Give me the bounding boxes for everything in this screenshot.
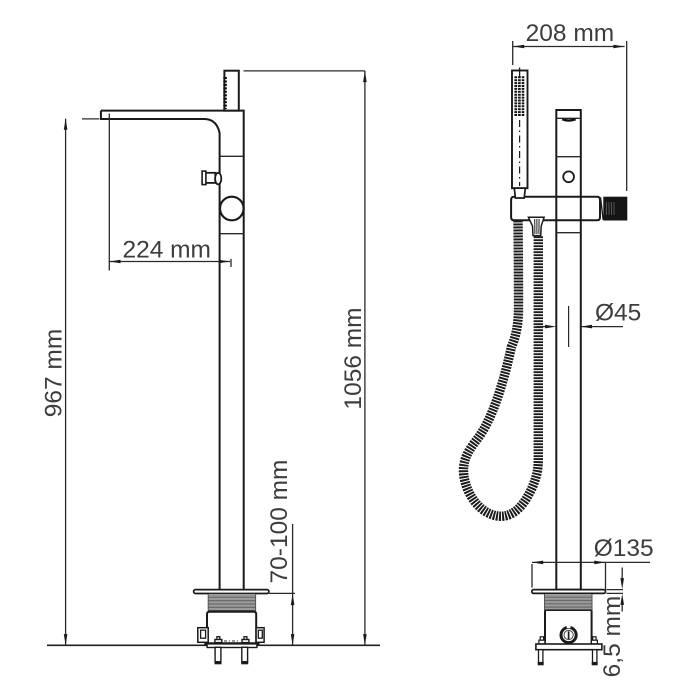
svg-text:Ø135: Ø135: [594, 535, 654, 562]
svg-text:6,5 mm: 6,5 mm: [599, 596, 626, 678]
svg-text:967 mm: 967 mm: [41, 329, 68, 418]
svg-text:224 mm: 224 mm: [122, 237, 211, 264]
svg-text:70-100 mm: 70-100 mm: [266, 460, 293, 584]
svg-text:1056 mm: 1056 mm: [340, 307, 367, 409]
svg-text:Ø45: Ø45: [595, 300, 641, 327]
svg-text:208 mm: 208 mm: [526, 20, 615, 47]
